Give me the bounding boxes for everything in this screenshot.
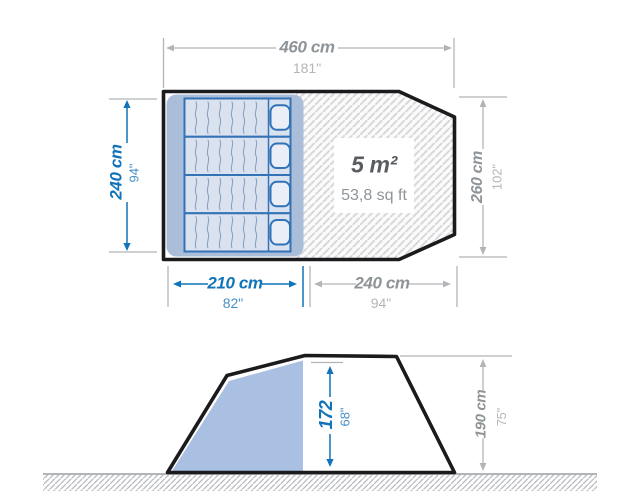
living-depth-metric-label: 260 cm <box>470 151 486 203</box>
bed-row <box>185 213 291 251</box>
tent-dimensions-diagram: 460 cm 181" 240 cm 94" 260 cm 102" 5 m² … <box>0 0 640 495</box>
living-width-imperial-label: 94" <box>371 296 392 310</box>
bed-row <box>185 99 291 137</box>
bedroom-width-metric-label: 210 cm <box>207 275 262 292</box>
bedroom-width-imperial-label: 82" <box>223 296 244 310</box>
bedroom-depth-metric-label: 240 cm <box>108 144 125 199</box>
bedroom-depth-imperial-label: 94" <box>128 163 141 182</box>
elevation-cabin-fill <box>172 361 303 472</box>
bed-row <box>185 175 291 213</box>
peak-height-metric-label: 190 cm <box>474 390 489 438</box>
interior-height-imperial-label: 68" <box>339 407 352 426</box>
bed-icons <box>185 99 291 252</box>
floor-plan-view <box>164 92 455 260</box>
bed-row <box>185 137 291 175</box>
living-depth-imperial-label: 102" <box>491 164 504 190</box>
total-width-imperial-label: 181" <box>293 61 321 75</box>
living-area-imperial-label: 53,8 sq ft <box>341 188 407 204</box>
interior-height-metric-label: 172 <box>317 401 335 430</box>
total-width-metric-label: 460 cm <box>279 39 334 56</box>
living-area-metric-label: 5 m² <box>351 154 397 177</box>
pillow-icon <box>271 144 291 169</box>
peak-height-imperial-label: 75" <box>496 408 509 426</box>
pillow-icon <box>271 220 291 245</box>
ground-hatch <box>43 475 597 491</box>
living-width-metric-label: 240 cm <box>354 275 409 292</box>
pillow-icon <box>271 182 291 207</box>
pillow-icon <box>271 105 291 130</box>
